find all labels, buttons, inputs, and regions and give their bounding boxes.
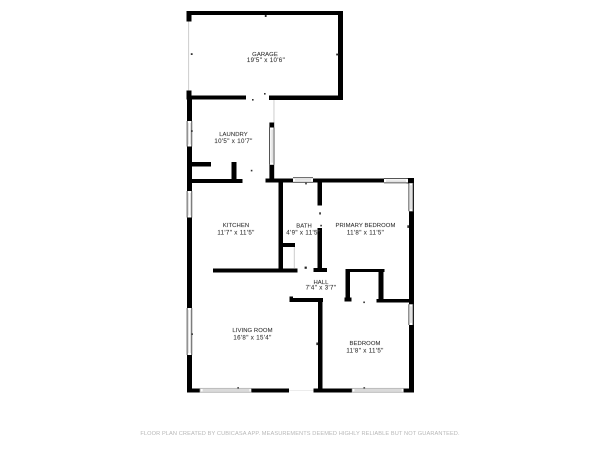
svg-text:16'8" x 15'4": 16'8" x 15'4" — [233, 334, 271, 341]
svg-text:19'5" x 10'6": 19'5" x 10'6" — [247, 57, 285, 64]
svg-text:4'9" x 11'5": 4'9" x 11'5" — [286, 229, 320, 236]
svg-text:11'8" x 11'5": 11'8" x 11'5" — [346, 348, 383, 355]
svg-text:11'8" x 11'5": 11'8" x 11'5" — [347, 229, 384, 236]
svg-text:7'4" x 3'7": 7'4" x 3'7" — [306, 284, 337, 291]
svg-text:LIVING ROOM: LIVING ROOM — [232, 328, 272, 334]
svg-text:PRIMARY BEDROOM: PRIMARY BEDROOM — [336, 223, 396, 229]
svg-text:FLOOR PLAN CREATED BY CUBICASA: FLOOR PLAN CREATED BY CUBICASA APP. MEAS… — [140, 431, 460, 437]
svg-text:KITCHEN: KITCHEN — [223, 223, 249, 229]
svg-text:BEDROOM: BEDROOM — [350, 341, 381, 347]
svg-text:10'5" x 10'7": 10'5" x 10'7" — [214, 138, 252, 145]
svg-text:11'7" x 11'5": 11'7" x 11'5" — [217, 229, 254, 236]
